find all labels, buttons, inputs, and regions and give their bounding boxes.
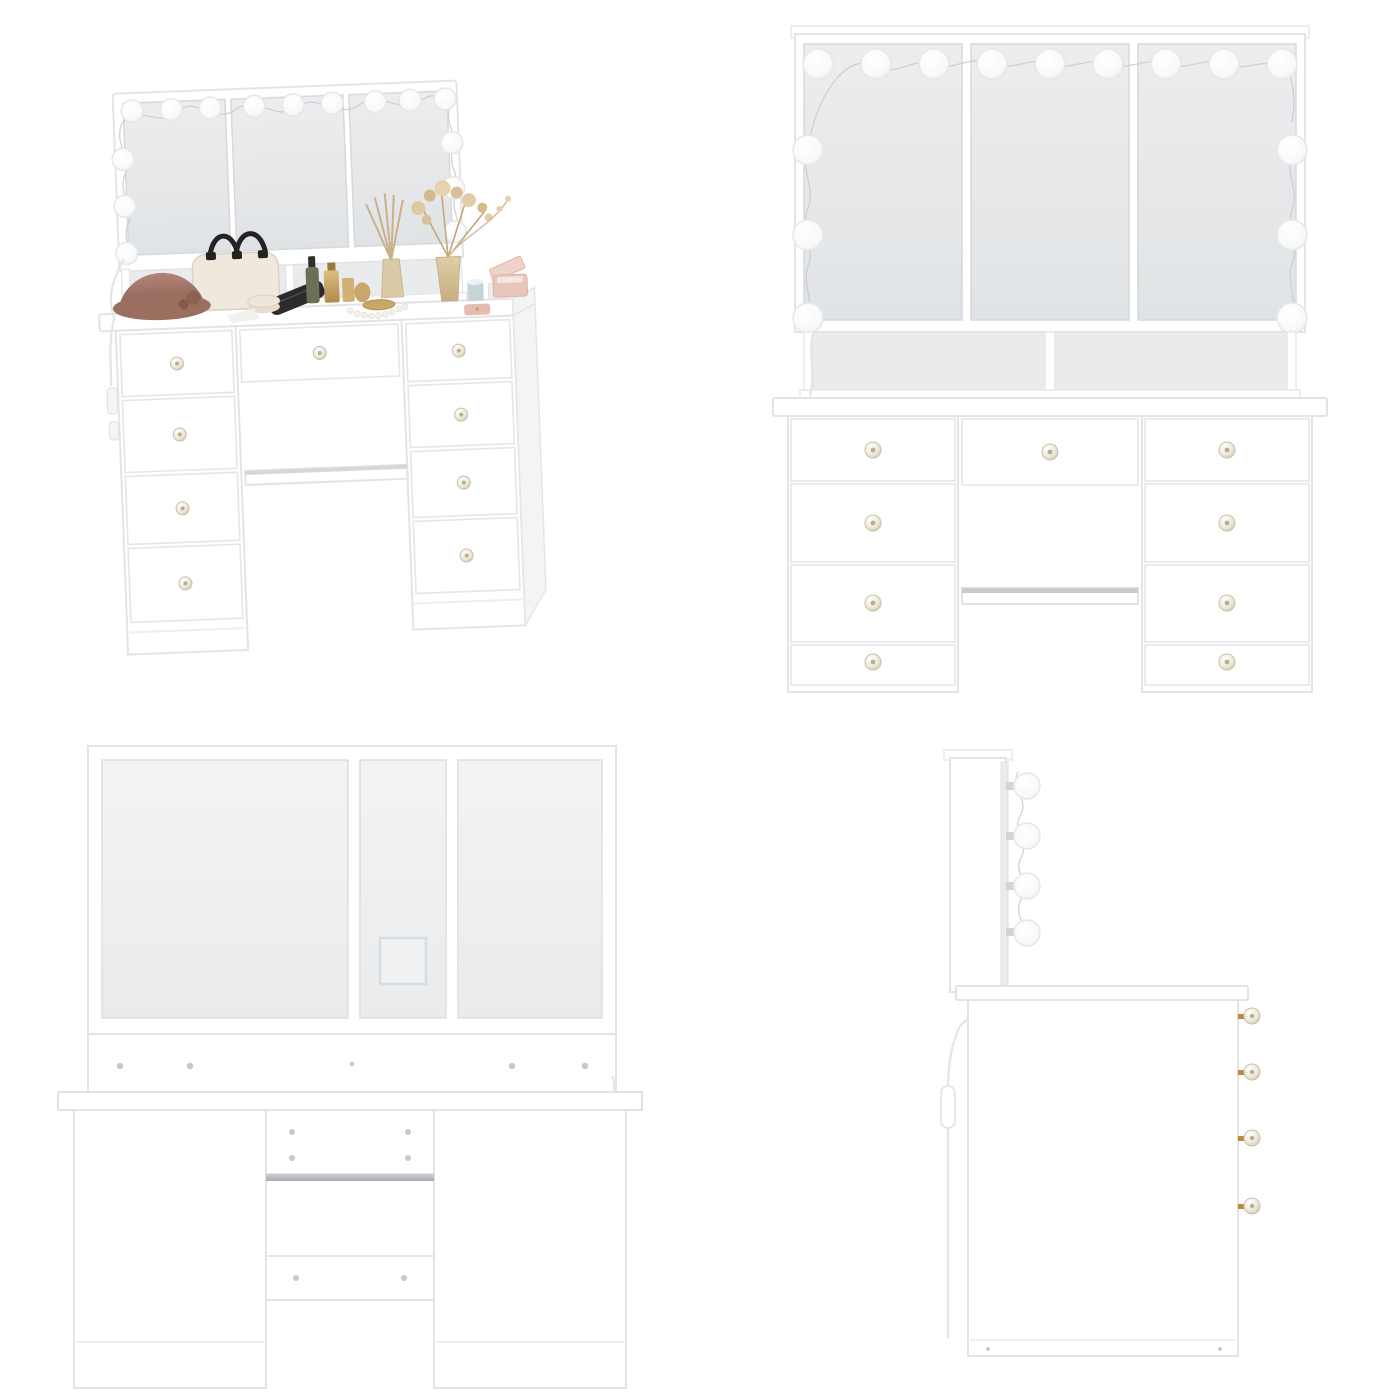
shelf-divider xyxy=(1045,332,1055,392)
led-bulb xyxy=(243,95,266,118)
foot-glide xyxy=(986,1347,990,1351)
screw xyxy=(509,1063,515,1069)
knob-center xyxy=(871,660,876,665)
pearl xyxy=(396,306,402,312)
screw xyxy=(405,1129,411,1135)
pedestal-left xyxy=(788,416,958,692)
pearl xyxy=(354,310,360,316)
knob-center xyxy=(1225,448,1230,453)
cable-cutout xyxy=(380,938,426,984)
view-angled-figure xyxy=(0,0,700,700)
view-front-figure xyxy=(700,0,1400,700)
shelf-back-rail xyxy=(266,1256,434,1300)
crossbar-board xyxy=(266,1110,434,1174)
vanity-front xyxy=(773,26,1327,692)
pedestal-left xyxy=(116,326,248,654)
knob-center xyxy=(1225,521,1230,526)
pink-jewelry-box xyxy=(489,256,528,298)
led-bulb xyxy=(1151,49,1181,79)
product-image-grid xyxy=(0,0,1400,1400)
flower-bloom xyxy=(477,202,487,212)
storage-shelf xyxy=(800,332,1300,400)
led-bulb xyxy=(112,148,135,171)
knob-center xyxy=(1250,1014,1254,1018)
led-bulb xyxy=(1277,135,1307,165)
back-panel-right xyxy=(458,760,602,1018)
box-inner xyxy=(497,276,523,283)
mirror-panel-left xyxy=(804,44,962,320)
center-drawer xyxy=(962,419,1138,485)
screw xyxy=(582,1063,588,1069)
diffuser-bottle xyxy=(380,259,403,298)
vanity-back xyxy=(58,746,642,1388)
led-bulbs-top-row xyxy=(803,49,1297,79)
mirror-back-board xyxy=(950,758,1006,992)
inline-switch xyxy=(941,1086,955,1128)
bag-tab xyxy=(206,252,216,260)
led-bulb xyxy=(1277,303,1307,333)
desk-top xyxy=(956,986,1248,1000)
bag-tab xyxy=(232,251,242,259)
led-bulb xyxy=(1014,823,1040,849)
pearl xyxy=(361,312,367,318)
knob-center xyxy=(871,521,876,526)
screw xyxy=(289,1155,295,1161)
shelf-rail-board xyxy=(266,1256,434,1300)
led-bulb xyxy=(793,135,823,165)
mirror-panel-left xyxy=(123,99,231,255)
screw xyxy=(289,1129,295,1135)
led-bulb xyxy=(793,303,823,333)
view-front-illustration xyxy=(700,0,1400,700)
screw xyxy=(405,1155,411,1161)
knob-center xyxy=(1225,660,1230,665)
bottle-body xyxy=(305,267,319,303)
desk-top xyxy=(58,1092,642,1110)
knob-center xyxy=(1250,1070,1254,1074)
led-bulb xyxy=(321,92,344,115)
led-bulb xyxy=(399,89,422,112)
pedestal-back-right xyxy=(434,1110,626,1388)
mirror-panel-right xyxy=(1138,44,1296,320)
pedestal-right xyxy=(402,316,526,630)
led-bulb xyxy=(434,88,457,111)
led-bulb xyxy=(364,90,387,113)
screw xyxy=(350,1062,354,1066)
desk-side-panel xyxy=(968,1000,1238,1356)
pearl xyxy=(347,308,353,314)
screw xyxy=(117,1063,123,1069)
blue-candle xyxy=(467,279,484,302)
bag-tab xyxy=(258,250,268,258)
hutch-back xyxy=(88,746,616,1034)
led-bulb xyxy=(803,49,833,79)
led-bulb xyxy=(282,93,305,116)
led-bulb xyxy=(1267,49,1297,79)
led-bulb xyxy=(114,195,137,218)
side-knobs xyxy=(1238,1008,1260,1214)
led-bulb xyxy=(1014,773,1040,799)
led-bulb xyxy=(1014,873,1040,899)
mirror-trifold xyxy=(791,26,1309,333)
pedestal-back-panel xyxy=(74,1110,266,1388)
pearl xyxy=(375,313,381,319)
knob-center xyxy=(1048,450,1053,455)
led-bulb xyxy=(1014,920,1040,946)
perfume-bottle xyxy=(324,270,340,303)
power-strip xyxy=(107,388,118,414)
foot-glide xyxy=(1218,1347,1222,1351)
mirror-glass-edge xyxy=(1001,762,1008,988)
knob-center xyxy=(1225,601,1230,606)
led-bulb xyxy=(1093,49,1123,79)
knob-center xyxy=(871,601,876,606)
view-back-figure xyxy=(0,700,700,1400)
led-bulb xyxy=(444,220,467,243)
pearl xyxy=(389,309,395,315)
mirror-panel-center xyxy=(231,95,349,251)
bottle-cap xyxy=(308,256,315,267)
mirror-trifold xyxy=(110,80,468,271)
center-drawer xyxy=(240,324,400,382)
mirror-panel-right xyxy=(349,91,453,247)
led-bulb xyxy=(1209,49,1239,79)
led-bulb xyxy=(440,131,463,154)
perfume-bottle xyxy=(342,278,355,302)
led-bulb xyxy=(121,100,144,123)
vanity-angled xyxy=(91,78,548,655)
mirror-panel-center xyxy=(971,44,1129,320)
metal-strip xyxy=(266,1174,434,1181)
view-side-figure xyxy=(700,700,1400,1400)
view-back-illustration xyxy=(0,700,700,1400)
led-bulb xyxy=(861,49,891,79)
screw xyxy=(293,1275,299,1281)
flower-bloom xyxy=(496,206,502,212)
back-panel-left xyxy=(102,760,348,1018)
mirror-side-profile xyxy=(944,750,1040,992)
knob-center xyxy=(1250,1204,1254,1208)
shelf-side-right xyxy=(1287,332,1296,398)
led-bulbs-side xyxy=(1006,773,1040,946)
led-bulb xyxy=(977,49,1007,79)
pink-case xyxy=(464,303,490,315)
desk-side xyxy=(956,986,1248,1356)
flower-bloom xyxy=(505,196,511,202)
knob-center xyxy=(1250,1136,1254,1140)
view-angled-illustration xyxy=(0,0,700,700)
power-strip xyxy=(109,422,119,440)
knee-shelf-edge xyxy=(962,588,1138,593)
led-bulb xyxy=(1277,220,1307,250)
led-bulb xyxy=(199,97,222,120)
screw xyxy=(401,1275,407,1281)
led-bulb xyxy=(115,242,138,265)
perfume-cap xyxy=(327,262,335,270)
center-crossbar xyxy=(266,1110,434,1181)
led-bulb xyxy=(160,98,183,121)
desk-top xyxy=(773,398,1327,416)
pearl xyxy=(368,313,374,319)
view-side-illustration xyxy=(700,700,1400,1400)
led-bulb xyxy=(919,49,949,79)
pedestal-right xyxy=(1142,416,1312,692)
screw xyxy=(187,1063,193,1069)
pearl xyxy=(402,304,408,310)
led-bulb xyxy=(1035,49,1065,79)
knob-center xyxy=(871,448,876,453)
vanity-side xyxy=(941,750,1260,1356)
pearl xyxy=(382,311,388,317)
led-bulb xyxy=(793,220,823,250)
pedestal-back-panel xyxy=(434,1110,626,1388)
pedestal-back-left xyxy=(74,1110,266,1388)
